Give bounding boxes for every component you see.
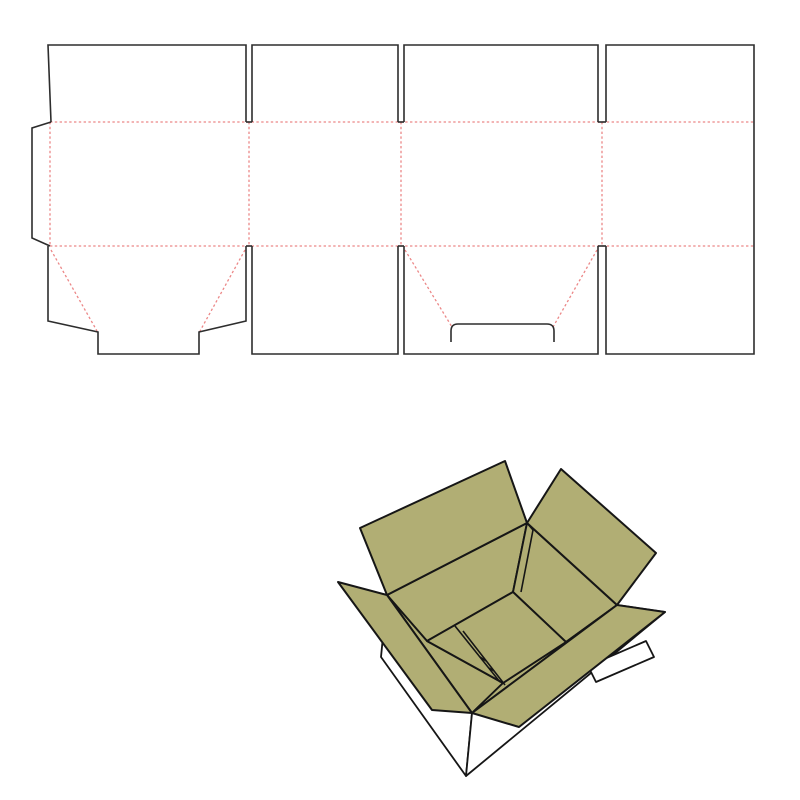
bottom-flap-1-cut xyxy=(48,246,246,354)
glue-flap-cut xyxy=(32,122,51,246)
top-flap-1-cut xyxy=(48,45,246,122)
packaging-illustration xyxy=(0,0,800,800)
bottom-flap-2-cut xyxy=(252,246,398,354)
fold-diagonal-flap1-left xyxy=(51,250,97,331)
fold-diagonal-flap3-left xyxy=(405,250,452,327)
top-flap-3-cut xyxy=(404,45,598,122)
fold-diagonal-flap1-right xyxy=(200,250,245,331)
bottom-flap-3-cut xyxy=(404,246,598,354)
box3d-group xyxy=(338,461,665,776)
panel-4-outline-cut xyxy=(606,45,754,354)
dieline-group xyxy=(32,45,754,354)
fold-diagonal-flap3-right xyxy=(553,250,597,327)
scene-svg xyxy=(0,0,800,800)
handle-slot-cut xyxy=(451,324,554,342)
top-flap-2-cut xyxy=(252,45,398,122)
